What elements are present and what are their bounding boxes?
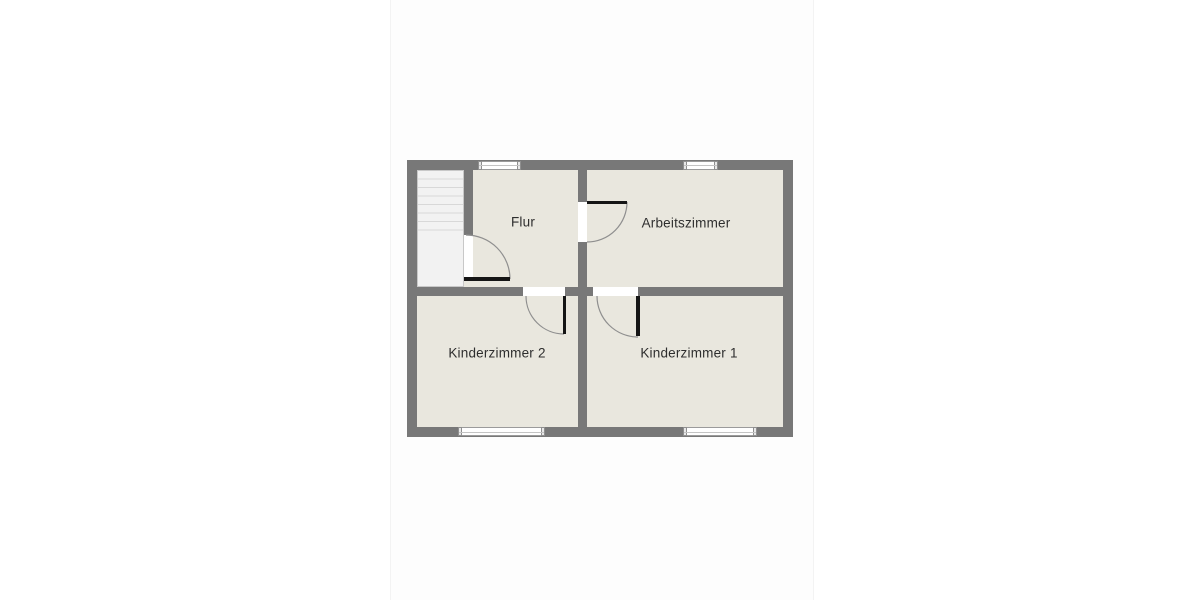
window-cap [753,427,757,436]
window-cap [478,161,482,170]
door-opening-kinderzimmer-2 [523,287,565,296]
stair-steps-icon [418,171,463,238]
room-label-arbeitszimmer: Arbeitszimmer [642,216,731,231]
window-cap [714,161,718,170]
window-cap [683,161,687,170]
wall-staircase [464,170,473,235]
staircase [417,170,464,287]
window-cap [458,427,462,436]
door-leaf-flur [464,277,510,281]
door-leaf-kinderzimmer-1 [636,296,640,336]
door-arc-kinderzimmer-2-icon [526,296,564,334]
window-arbeitszimmer [683,161,718,170]
room-label-flur: Flur [511,215,535,230]
door-opening-kinderzimmer-1 [593,287,638,296]
window-kinderzimmer-2 [458,427,545,436]
window-cap [683,427,687,436]
door-arc-arbeitszimmer-icon [587,202,627,242]
room-label-kinderzimmer-2: Kinderzimmer 2 [448,346,545,361]
room-label-kinderzimmer-1: Kinderzimmer 1 [640,346,737,361]
window-cap [517,161,521,170]
door-arc-kinderzimmer-1-icon [597,296,638,337]
door-arc-flur-icon [464,235,510,279]
door-leaf-kinderzimmer-2 [563,296,567,334]
door-leaf-arbeitszimmer [587,201,627,205]
window-cap [541,427,545,436]
window-kinderzimmer-1 [683,427,757,436]
floor-plan: Flur Arbeitszimmer Kinderzimmer 2 Kinder… [407,160,793,437]
window-flur [478,161,521,170]
door-opening-arbeitszimmer [578,202,587,242]
